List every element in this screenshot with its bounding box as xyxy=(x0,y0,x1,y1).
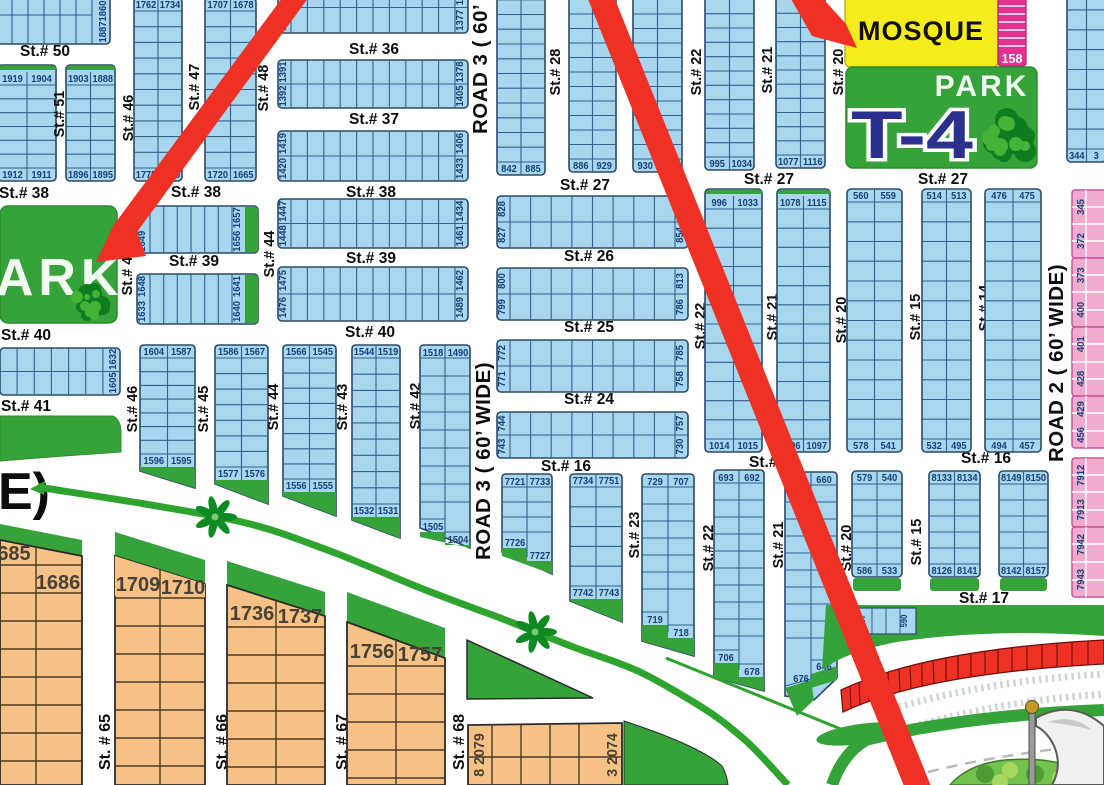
svg-text:929: 929 xyxy=(596,161,612,173)
svg-text:1604: 1604 xyxy=(144,347,165,359)
svg-text:1034: 1034 xyxy=(732,159,753,171)
svg-text:1633: 1633 xyxy=(137,301,149,322)
svg-text:1657: 1657 xyxy=(232,207,244,228)
svg-text:1895: 1895 xyxy=(93,170,114,182)
svg-text:930: 930 xyxy=(637,161,653,173)
svg-text:813: 813 xyxy=(675,273,687,289)
svg-text:St.# 44: St.# 44 xyxy=(266,384,282,431)
svg-text:St.# 21: St.# 21 xyxy=(760,47,776,94)
svg-text:1919: 1919 xyxy=(2,74,23,86)
svg-text:372: 372 xyxy=(1076,233,1088,249)
svg-text:St.# 50: St.# 50 xyxy=(20,43,70,60)
svg-text:514: 514 xyxy=(926,191,942,203)
svg-text:1420: 1420 xyxy=(278,158,290,179)
svg-text:706: 706 xyxy=(718,653,734,665)
svg-text:St.# 38: St.# 38 xyxy=(171,184,221,201)
svg-text:7742: 7742 xyxy=(573,588,594,600)
svg-text:1391: 1391 xyxy=(278,61,290,82)
svg-text:707: 707 xyxy=(673,477,689,489)
svg-text:8149: 8149 xyxy=(1001,473,1022,485)
svg-text:757: 757 xyxy=(675,415,687,431)
svg-text:St.# 41: St.# 41 xyxy=(1,398,51,415)
svg-text:1566: 1566 xyxy=(286,347,307,359)
svg-text:1434: 1434 xyxy=(455,200,467,221)
svg-text:St.# 36: St.# 36 xyxy=(349,41,399,58)
svg-text:1656: 1656 xyxy=(232,230,244,251)
svg-text:1904: 1904 xyxy=(31,74,52,86)
svg-text:7727: 7727 xyxy=(530,551,551,563)
svg-text:828: 828 xyxy=(497,201,509,217)
svg-text:494: 494 xyxy=(991,441,1007,453)
svg-text:1720: 1720 xyxy=(208,170,229,182)
svg-text:1737: 1737 xyxy=(278,606,323,628)
svg-text:429: 429 xyxy=(1076,401,1088,417)
svg-text:St.# 40: St.# 40 xyxy=(345,324,395,341)
svg-text:St.# 43: St.# 43 xyxy=(335,384,351,431)
svg-text:8142: 8142 xyxy=(1001,566,1022,578)
svg-text:744: 744 xyxy=(497,415,509,431)
svg-text:St. # 65: St. # 65 xyxy=(97,714,114,770)
svg-text:1350: 1350 xyxy=(455,0,467,5)
svg-text:1756: 1756 xyxy=(350,641,395,663)
svg-text:1544: 1544 xyxy=(354,347,375,359)
svg-text:456: 456 xyxy=(1076,427,1088,443)
svg-text:772: 772 xyxy=(497,345,509,361)
svg-text:8134: 8134 xyxy=(957,473,978,485)
svg-text:St.# 40: St.# 40 xyxy=(1,327,51,344)
svg-text:800: 800 xyxy=(497,273,509,289)
svg-text:7942: 7942 xyxy=(1076,534,1088,555)
svg-text:1648: 1648 xyxy=(137,276,149,297)
svg-text:St.# 48: St.# 48 xyxy=(256,65,272,112)
svg-text:1097: 1097 xyxy=(807,441,828,453)
svg-text:1860: 1860 xyxy=(98,0,110,21)
svg-text:158: 158 xyxy=(1002,52,1023,66)
svg-text:St.# 27: St.# 27 xyxy=(560,177,610,194)
svg-text:400: 400 xyxy=(1076,302,1088,318)
svg-text:1586: 1586 xyxy=(218,347,239,359)
svg-text:7726: 7726 xyxy=(505,538,526,550)
svg-text:428: 428 xyxy=(1076,371,1088,387)
svg-text:579: 579 xyxy=(857,473,873,485)
svg-text:1903: 1903 xyxy=(68,74,89,86)
svg-text:1504: 1504 xyxy=(448,535,469,547)
svg-text:1419: 1419 xyxy=(278,133,290,154)
svg-text:St.# 23: St.# 23 xyxy=(627,512,643,559)
svg-text:578: 578 xyxy=(853,441,869,453)
svg-text:MOSQUE: MOSQUE xyxy=(858,16,984,46)
svg-text:1555: 1555 xyxy=(313,481,334,493)
svg-text:St.# 22: St.# 22 xyxy=(689,49,705,96)
svg-text:1641: 1641 xyxy=(232,276,244,297)
svg-text:1545: 1545 xyxy=(313,347,334,359)
svg-text:476: 476 xyxy=(991,191,1007,203)
svg-text:1896: 1896 xyxy=(68,170,89,182)
svg-text:786: 786 xyxy=(675,299,687,315)
svg-text:771: 771 xyxy=(497,371,509,387)
svg-text:1912: 1912 xyxy=(2,170,23,182)
svg-text:758: 758 xyxy=(675,371,687,387)
svg-text:1911: 1911 xyxy=(31,170,51,182)
svg-text:3: 3 xyxy=(1094,151,1100,163)
svg-text:St.# 26: St.# 26 xyxy=(564,248,614,265)
svg-text:995: 995 xyxy=(709,159,725,171)
svg-text:1448: 1448 xyxy=(278,225,290,246)
svg-text:560: 560 xyxy=(853,191,869,203)
svg-text:8133: 8133 xyxy=(932,473,953,485)
svg-text:St.# 47: St.# 47 xyxy=(187,64,203,111)
svg-text:730: 730 xyxy=(675,438,687,454)
svg-text:St.# 28: St.# 28 xyxy=(548,49,564,96)
svg-text:1532: 1532 xyxy=(354,506,375,518)
svg-text:1115: 1115 xyxy=(807,198,827,210)
svg-text:590: 590 xyxy=(898,614,909,627)
svg-text:678: 678 xyxy=(744,667,760,679)
svg-text:1710: 1710 xyxy=(161,577,206,599)
svg-text:7943: 7943 xyxy=(1076,569,1088,590)
svg-text:586: 586 xyxy=(857,566,873,578)
svg-text:1433: 1433 xyxy=(455,158,467,179)
svg-text:718: 718 xyxy=(673,628,689,640)
svg-text:7743: 7743 xyxy=(599,588,620,600)
svg-text:1531: 1531 xyxy=(378,506,399,518)
svg-text:1489: 1489 xyxy=(455,297,467,318)
svg-text:St.# 27: St.# 27 xyxy=(744,171,794,188)
svg-text:1757: 1757 xyxy=(398,644,443,666)
svg-text:St.# 45: St.# 45 xyxy=(196,386,212,433)
svg-text:532: 532 xyxy=(926,441,942,453)
svg-text:1678: 1678 xyxy=(233,0,254,11)
svg-text:1518: 1518 xyxy=(423,348,444,360)
svg-text:685: 685 xyxy=(0,543,31,565)
svg-text:1033: 1033 xyxy=(738,198,759,210)
svg-text:692: 692 xyxy=(744,473,760,485)
svg-text:996: 996 xyxy=(711,198,727,210)
svg-text:676: 676 xyxy=(793,674,809,686)
svg-text:T-4: T-4 xyxy=(851,97,973,173)
svg-text:344: 344 xyxy=(1069,151,1085,163)
svg-text:1577: 1577 xyxy=(218,469,239,481)
svg-text:3 2074: 3 2074 xyxy=(605,732,621,776)
svg-text:1707: 1707 xyxy=(208,0,229,11)
svg-text:373: 373 xyxy=(1076,267,1088,283)
svg-text:1576: 1576 xyxy=(245,469,266,481)
svg-text:541: 541 xyxy=(880,441,896,453)
svg-text:St.# 16: St.# 16 xyxy=(541,458,591,475)
svg-text:1077: 1077 xyxy=(778,157,799,169)
svg-text:1462: 1462 xyxy=(455,270,467,291)
svg-text:1475: 1475 xyxy=(278,270,290,291)
svg-text:7734: 7734 xyxy=(573,476,594,488)
svg-text:475: 475 xyxy=(1019,191,1035,203)
svg-text:1686: 1686 xyxy=(36,572,81,594)
svg-text:1556: 1556 xyxy=(286,481,307,493)
svg-text:7733: 7733 xyxy=(530,477,551,489)
svg-text:1595: 1595 xyxy=(171,456,192,468)
svg-text:1505: 1505 xyxy=(423,522,444,534)
svg-text:1461: 1461 xyxy=(455,225,467,246)
svg-text:559: 559 xyxy=(880,191,896,203)
svg-text:St.# 39: St.# 39 xyxy=(346,250,396,267)
svg-text:886: 886 xyxy=(573,161,589,173)
svg-text:St.# 38: St.# 38 xyxy=(0,185,49,202)
svg-text:8150: 8150 xyxy=(1026,473,1047,485)
svg-text:1887: 1887 xyxy=(98,21,110,42)
svg-text:1078: 1078 xyxy=(780,198,801,210)
svg-text:St.# 37: St.# 37 xyxy=(349,111,399,128)
svg-text:7751: 7751 xyxy=(599,476,620,488)
svg-text:St.# 17: St.# 17 xyxy=(959,590,1009,607)
svg-text:St.# 15: St.# 15 xyxy=(909,519,925,566)
svg-text:St.# 24: St.# 24 xyxy=(564,391,614,408)
svg-text:8141: 8141 xyxy=(957,566,978,578)
svg-text:1447: 1447 xyxy=(278,200,290,221)
svg-text:1405: 1405 xyxy=(455,85,467,106)
svg-text:495: 495 xyxy=(951,441,967,453)
svg-text:St.# 44: St.# 44 xyxy=(262,231,278,278)
svg-text:St. # 68: St. # 68 xyxy=(451,714,468,770)
svg-text:885: 885 xyxy=(525,164,541,176)
svg-text:401: 401 xyxy=(1076,336,1088,352)
svg-text:1378: 1378 xyxy=(455,61,467,82)
svg-text:8126: 8126 xyxy=(932,566,953,578)
svg-text:345: 345 xyxy=(1076,199,1088,215)
svg-text:1116: 1116 xyxy=(803,157,823,169)
svg-text:1392: 1392 xyxy=(278,85,290,106)
svg-text:533: 533 xyxy=(882,566,898,578)
svg-text:1665: 1665 xyxy=(233,170,254,182)
svg-text:799: 799 xyxy=(497,299,509,315)
svg-text:660: 660 xyxy=(816,475,832,487)
svg-text:St.# 27: St.# 27 xyxy=(918,171,968,188)
svg-text:ROAD 3 ( 60’ WIDE): ROAD 3 ( 60’ WIDE) xyxy=(472,362,495,560)
svg-text:1734: 1734 xyxy=(160,0,181,11)
svg-text:827: 827 xyxy=(497,227,509,243)
svg-text:1605 1632: 1605 1632 xyxy=(108,348,120,393)
svg-text:1014: 1014 xyxy=(709,441,730,453)
svg-text:7721: 7721 xyxy=(505,477,526,489)
svg-text:693: 693 xyxy=(718,473,734,485)
svg-text:1888: 1888 xyxy=(93,74,114,86)
svg-text:St.# 39: St.# 39 xyxy=(169,253,219,270)
svg-text:785: 785 xyxy=(675,345,687,361)
svg-text:St.# 46: St.# 46 xyxy=(125,386,141,433)
svg-text:1736: 1736 xyxy=(230,603,275,625)
svg-text:1587: 1587 xyxy=(171,347,192,359)
svg-text:1762: 1762 xyxy=(136,0,157,11)
svg-text:7912: 7912 xyxy=(1076,464,1088,485)
svg-text:1596: 1596 xyxy=(144,456,165,468)
svg-text:1406: 1406 xyxy=(455,133,467,154)
svg-text:729: 729 xyxy=(647,477,663,489)
svg-text:1640: 1640 xyxy=(232,301,244,322)
svg-text:457: 457 xyxy=(1019,441,1035,453)
svg-text:1567: 1567 xyxy=(245,347,266,359)
svg-text:7913: 7913 xyxy=(1076,499,1088,520)
svg-text:1377: 1377 xyxy=(455,9,467,30)
svg-text:1519: 1519 xyxy=(378,347,399,359)
svg-text:1015: 1015 xyxy=(738,441,759,453)
svg-text:1709: 1709 xyxy=(116,574,161,596)
svg-text:St.# 25: St.# 25 xyxy=(564,319,614,336)
svg-text:743: 743 xyxy=(497,438,509,454)
svg-text:8157: 8157 xyxy=(1026,566,1047,578)
svg-text:1490: 1490 xyxy=(448,348,469,360)
svg-text:8 2079: 8 2079 xyxy=(472,733,488,777)
svg-text:842: 842 xyxy=(501,164,517,176)
svg-text:ROAD 2 ( 60’ WIDE): ROAD 2 ( 60’ WIDE) xyxy=(1045,264,1068,462)
svg-text:ROAD 3 ( 60’ WIDE): ROAD 3 ( 60’ WIDE) xyxy=(469,0,492,134)
svg-text:540: 540 xyxy=(882,473,898,485)
svg-text:719: 719 xyxy=(647,615,663,627)
svg-text:513: 513 xyxy=(951,191,967,203)
svg-text:1476: 1476 xyxy=(278,297,290,318)
